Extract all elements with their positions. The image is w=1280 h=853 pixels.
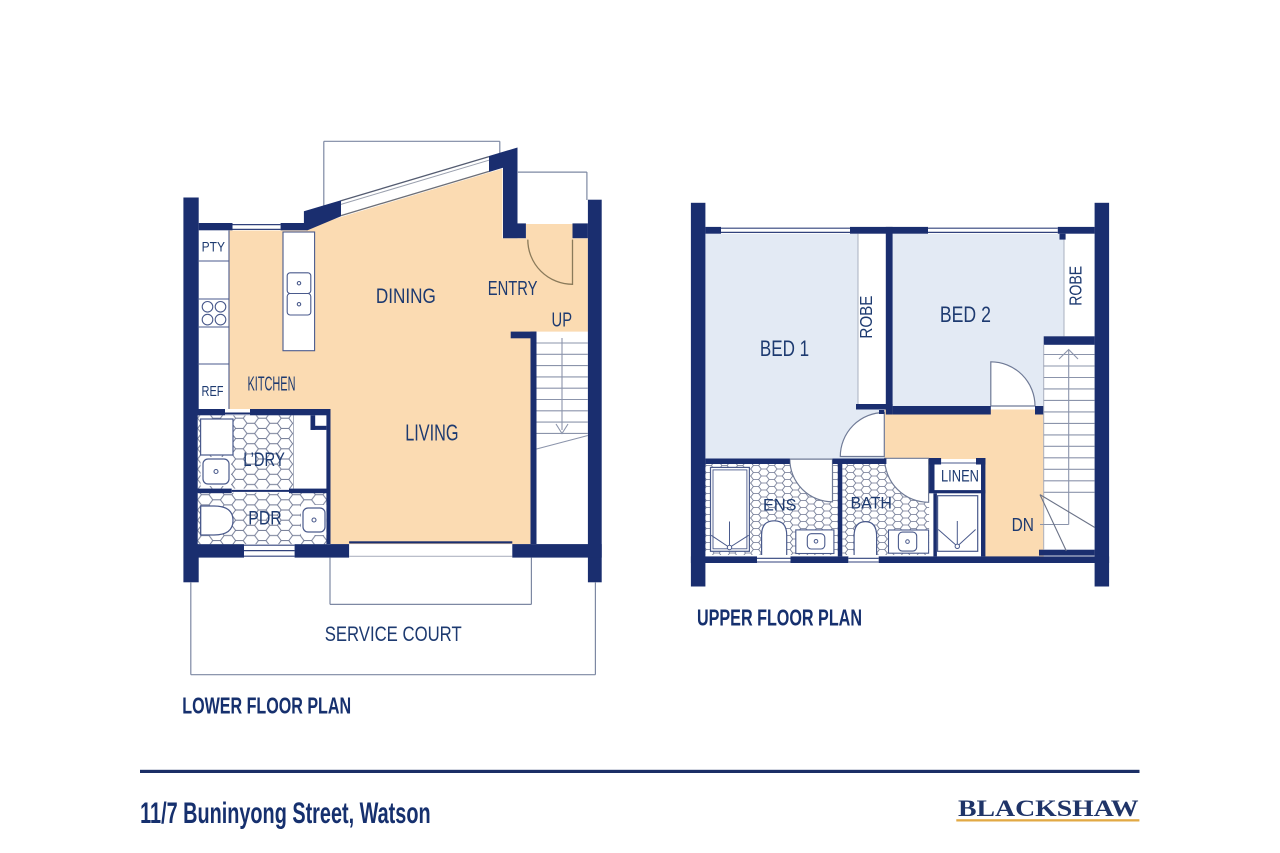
- svg-text:UPPER FLOOR PLAN: UPPER FLOOR PLAN: [697, 605, 862, 631]
- svg-text:BED 2: BED 2: [940, 302, 991, 327]
- svg-text:DN: DN: [1012, 515, 1034, 535]
- svg-text:PDR: PDR: [248, 509, 282, 530]
- svg-text:L’DRY: L’DRY: [243, 449, 285, 471]
- svg-text:KITCHEN: KITCHEN: [248, 373, 296, 396]
- svg-text:BATH: BATH: [850, 495, 892, 513]
- svg-text:ENTRY: ENTRY: [488, 277, 538, 300]
- svg-text:DINING: DINING: [376, 284, 436, 308]
- svg-text:ENS: ENS: [763, 497, 797, 515]
- svg-text:BLACKSHAW: BLACKSHAW: [958, 796, 1139, 822]
- svg-text:BED 1: BED 1: [760, 336, 809, 361]
- svg-text:SERVICE COURT: SERVICE COURT: [325, 622, 462, 646]
- svg-text:LOWER FLOOR PLAN: LOWER FLOOR PLAN: [182, 692, 351, 718]
- svg-text:11/7 Buninyong Street, Watson: 11/7 Buninyong Street, Watson: [140, 797, 431, 830]
- svg-text:PTY: PTY: [202, 239, 226, 255]
- svg-text:UP: UP: [552, 310, 573, 332]
- svg-text:ROBE: ROBE: [856, 296, 876, 339]
- svg-text:LIVING: LIVING: [405, 420, 458, 446]
- svg-text:LINEN: LINEN: [941, 467, 979, 485]
- svg-text:ROBE: ROBE: [1066, 266, 1086, 306]
- svg-text:REF: REF: [202, 383, 224, 400]
